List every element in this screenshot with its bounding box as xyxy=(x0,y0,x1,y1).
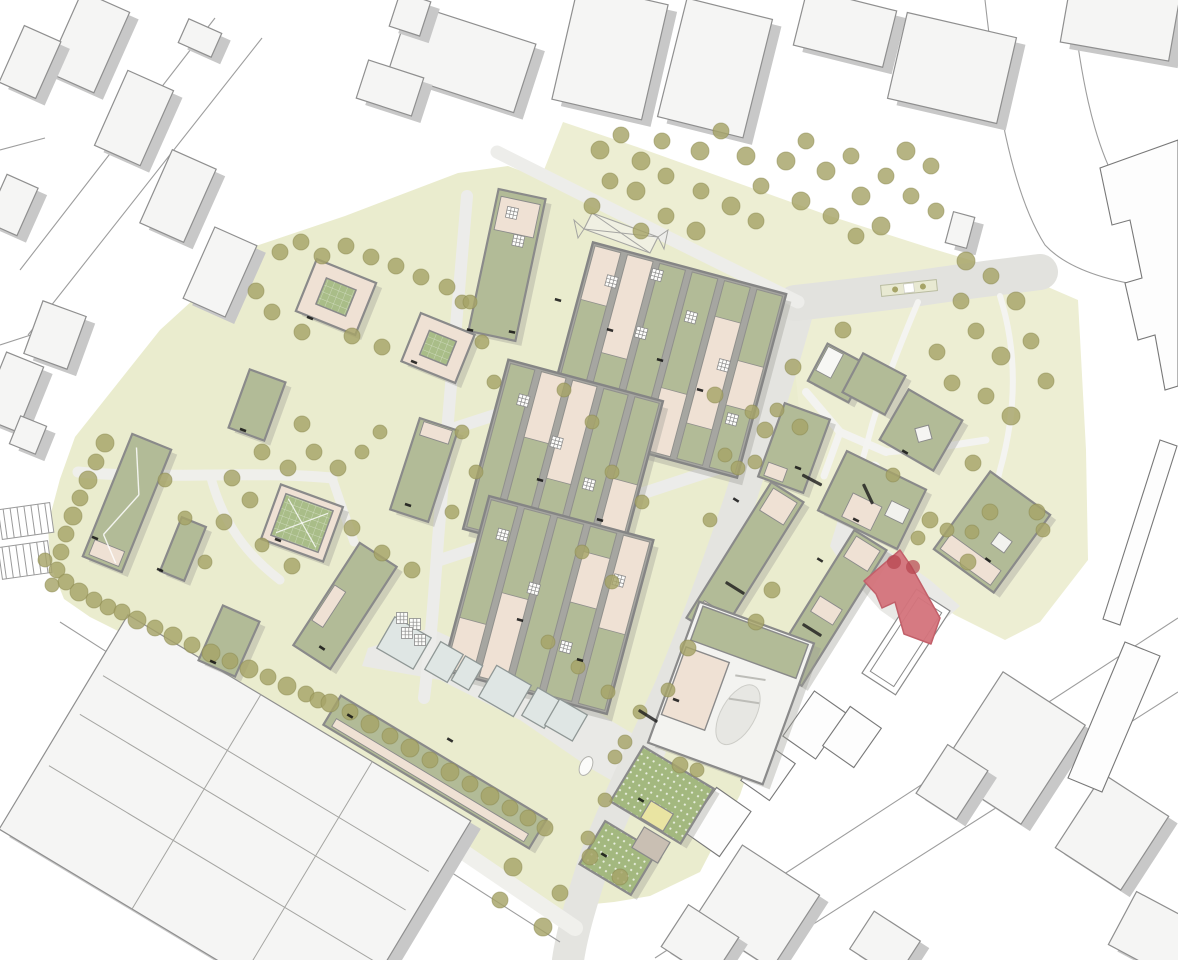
context-building xyxy=(850,911,921,960)
tree-icon xyxy=(306,444,322,460)
skylight xyxy=(527,582,540,595)
tree-icon xyxy=(534,918,552,936)
tree-icon xyxy=(541,635,555,649)
tree-icon xyxy=(198,555,212,569)
tree-icon xyxy=(605,465,619,479)
tree-icon xyxy=(601,685,615,699)
skylight xyxy=(650,268,663,281)
tree-icon xyxy=(469,465,483,479)
tree-icon xyxy=(363,249,379,265)
tree-icon xyxy=(184,637,200,653)
tree-icon xyxy=(581,831,595,845)
tree-icon xyxy=(872,217,890,235)
tree-icon xyxy=(965,455,981,471)
roof-diamond-court xyxy=(915,425,932,442)
tree-icon xyxy=(731,461,745,475)
tree-icon xyxy=(254,444,270,460)
tree-icon xyxy=(361,715,379,733)
tree-icon xyxy=(502,800,518,816)
tree-icon xyxy=(504,858,522,876)
tree-icon xyxy=(441,763,459,781)
tree-icon xyxy=(582,849,598,865)
tree-icon xyxy=(557,383,571,397)
tree-icon xyxy=(897,142,915,160)
tree-icon xyxy=(852,187,870,205)
tree-icon xyxy=(401,739,419,757)
tree-icon xyxy=(722,197,740,215)
tree-icon xyxy=(445,505,459,519)
tree-icon xyxy=(158,473,172,487)
tree-icon xyxy=(422,752,438,768)
tree-icon xyxy=(745,405,759,419)
tree-icon xyxy=(654,133,670,149)
skylight xyxy=(559,640,572,653)
tree-icon xyxy=(658,208,674,224)
tree-icon xyxy=(1038,373,1054,389)
tree-icon xyxy=(770,403,784,417)
tree-icon xyxy=(72,490,88,506)
tree-icon xyxy=(294,416,310,432)
tree-icon xyxy=(96,434,114,452)
skylight xyxy=(517,394,530,407)
tree-icon xyxy=(1002,407,1020,425)
tree-icon xyxy=(878,168,894,184)
tree-icon xyxy=(462,776,478,792)
skylight xyxy=(397,613,408,624)
tree-icon xyxy=(591,141,609,159)
tree-icon xyxy=(388,258,404,274)
tree-icon xyxy=(487,375,501,389)
tree-icon xyxy=(53,544,69,560)
tree-icon xyxy=(463,295,477,309)
skylight xyxy=(634,326,647,339)
tree-icon xyxy=(687,222,705,240)
tree-icon xyxy=(79,471,97,489)
outline-building xyxy=(1100,140,1178,390)
tree-icon xyxy=(355,445,369,459)
context-building xyxy=(793,0,896,67)
tree-icon xyxy=(475,335,489,349)
tree-icon xyxy=(552,885,568,901)
tree-icon xyxy=(953,293,969,309)
outline-building xyxy=(1103,440,1177,625)
tree-icon xyxy=(764,582,780,598)
tree-icon xyxy=(242,492,258,508)
tree-icon xyxy=(713,123,729,139)
tree-icon xyxy=(284,558,300,574)
tree-icon xyxy=(748,213,764,229)
skylight xyxy=(550,436,563,449)
tree-icon xyxy=(58,526,74,542)
tree-icon xyxy=(1023,333,1039,349)
tree-icon xyxy=(1029,504,1045,520)
tree-icon xyxy=(294,324,310,340)
tree-icon xyxy=(382,728,398,744)
tree-icon xyxy=(757,422,773,438)
tree-icon xyxy=(982,504,998,520)
tree-icon xyxy=(164,627,182,645)
outline-building xyxy=(1068,642,1160,792)
tree-icon xyxy=(602,173,618,189)
tree-icon xyxy=(960,554,976,570)
tree-icon xyxy=(344,520,360,536)
tree-icon xyxy=(792,192,810,210)
tree-icon xyxy=(1007,292,1025,310)
tree-icon xyxy=(38,553,52,567)
tree-icon xyxy=(330,460,346,476)
tree-icon xyxy=(923,158,939,174)
tree-icon xyxy=(1036,523,1050,537)
skylight xyxy=(402,628,413,639)
tree-icon xyxy=(222,653,238,669)
tree-icon xyxy=(280,460,296,476)
tree-icon xyxy=(983,268,999,284)
tree-icon xyxy=(598,793,612,807)
tree-icon xyxy=(922,512,938,528)
context-building xyxy=(1055,774,1168,890)
tree-icon xyxy=(264,304,280,320)
tree-icon xyxy=(248,283,264,299)
tree-icon xyxy=(202,644,220,662)
tree-icon xyxy=(413,269,429,285)
tree-icon xyxy=(978,388,994,404)
tree-icon xyxy=(785,359,801,375)
tree-icon xyxy=(608,750,622,764)
tree-icon xyxy=(957,252,975,270)
tree-icon xyxy=(753,178,769,194)
tree-icon xyxy=(928,203,944,219)
tree-icon xyxy=(693,183,709,199)
tree-icon xyxy=(703,513,717,527)
tree-icon xyxy=(45,578,59,592)
tree-icon xyxy=(114,604,130,620)
tree-icon xyxy=(661,683,675,697)
tree-icon xyxy=(635,495,649,509)
tree-icon xyxy=(992,347,1010,365)
tree-icon xyxy=(86,592,102,608)
tree-icon xyxy=(911,531,925,545)
tree-icon xyxy=(128,611,146,629)
tree-icon xyxy=(584,198,600,214)
tree-icon xyxy=(823,208,839,224)
tree-icon xyxy=(968,323,984,339)
tree-icon xyxy=(612,869,628,885)
tree-icon xyxy=(798,133,814,149)
context-road-line xyxy=(0,138,45,150)
tree-icon xyxy=(293,234,309,250)
tree-icon xyxy=(374,339,390,355)
tree-icon xyxy=(240,660,258,678)
tree-icon xyxy=(88,454,104,470)
tree-icon xyxy=(613,127,629,143)
tree-icon xyxy=(575,545,589,559)
tree-icon xyxy=(321,694,339,712)
marker-tinted-tree xyxy=(906,560,920,574)
skylight xyxy=(496,528,509,541)
tree-icon xyxy=(373,425,387,439)
tree-icon xyxy=(492,892,508,908)
tree-icon xyxy=(632,152,650,170)
tree-icon xyxy=(690,763,704,777)
tree-icon xyxy=(342,704,358,720)
tree-icon xyxy=(929,344,945,360)
skylight xyxy=(605,275,618,288)
tree-icon xyxy=(886,468,900,482)
tree-icon xyxy=(314,248,330,264)
tree-icon xyxy=(338,238,354,254)
tree-icon xyxy=(848,228,864,244)
tree-icon xyxy=(520,810,536,826)
tree-icon xyxy=(792,419,808,435)
context-building xyxy=(1060,0,1178,61)
tree-icon xyxy=(835,322,851,338)
tree-icon xyxy=(70,583,88,601)
tree-icon xyxy=(216,514,232,530)
site-plan-stage xyxy=(0,0,1178,960)
tree-icon xyxy=(633,223,649,239)
tree-icon xyxy=(748,455,762,469)
tree-icon xyxy=(817,162,835,180)
context-building xyxy=(1108,892,1178,960)
tree-icon xyxy=(404,562,420,578)
skylight xyxy=(512,234,525,247)
tree-icon xyxy=(737,147,755,165)
tree-icon xyxy=(903,188,919,204)
tree-icon xyxy=(707,387,723,403)
tree-icon xyxy=(260,669,276,685)
tree-icon xyxy=(455,425,469,439)
tree-icon xyxy=(718,448,732,462)
tree-icon xyxy=(439,279,455,295)
tree-icon xyxy=(344,328,360,344)
skylight xyxy=(684,311,697,324)
tree-icon xyxy=(944,375,960,391)
tree-icon xyxy=(843,148,859,164)
tree-icon xyxy=(940,523,954,537)
tree-icon xyxy=(374,545,390,561)
skylight xyxy=(505,206,518,219)
tree-icon xyxy=(748,614,764,630)
skylight xyxy=(415,635,426,646)
tree-icon xyxy=(537,820,553,836)
skylight xyxy=(725,413,738,426)
tree-icon xyxy=(680,640,696,656)
tree-icon xyxy=(627,182,645,200)
tree-icon xyxy=(224,470,240,486)
marker-tinted-tree xyxy=(887,555,901,569)
tree-icon xyxy=(618,735,632,749)
tree-icon xyxy=(585,415,599,429)
tree-icon xyxy=(691,142,709,160)
tree-icon xyxy=(605,575,619,589)
tree-icon xyxy=(481,787,499,805)
tree-icon xyxy=(965,525,979,539)
tree-icon xyxy=(255,538,269,552)
tree-icon xyxy=(777,152,795,170)
tree-icon xyxy=(178,511,192,525)
tree-icon xyxy=(571,660,585,674)
tree-icon xyxy=(672,757,688,773)
tree-icon xyxy=(658,168,674,184)
tree-icon xyxy=(64,507,82,525)
skylight xyxy=(582,478,595,491)
skylight xyxy=(717,359,730,372)
tree-icon xyxy=(272,244,288,260)
tree-icon xyxy=(278,677,296,695)
site-plan-canvas xyxy=(0,0,1178,960)
tree-icon xyxy=(147,620,163,636)
